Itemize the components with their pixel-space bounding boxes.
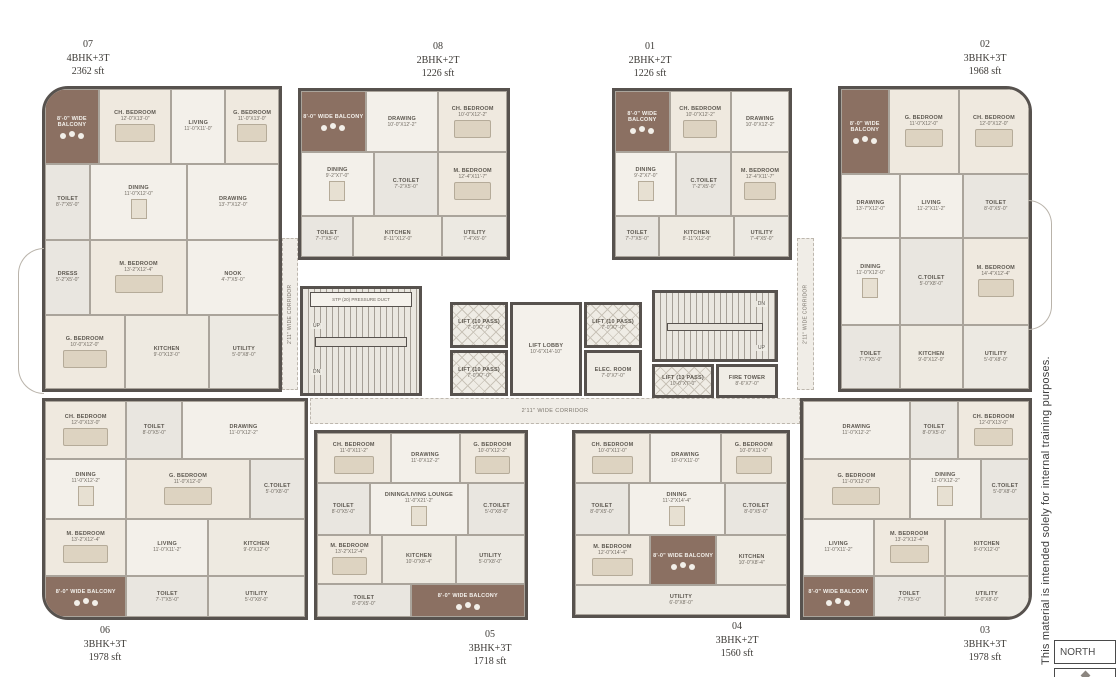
unit-01-plan: 8'-0" WIDE BALCONYCH. BEDROOM10'-0"X12'-… bbox=[612, 88, 792, 260]
room-dim: 11'-0"X12'-2" bbox=[411, 458, 439, 464]
stair-up-label: UP bbox=[756, 345, 767, 351]
room-dim: 10'-0"X12'-2" bbox=[458, 112, 487, 118]
room: 8'-0" WIDE BALCONY bbox=[803, 576, 874, 617]
room: UTILITY6'-0"X8'-0" bbox=[575, 585, 787, 615]
room-dim: 10'-0"X11'-0" bbox=[671, 458, 699, 464]
stair-dn-label: DN bbox=[311, 369, 322, 375]
room-dim: 7'-7"X5'-0" bbox=[625, 236, 648, 242]
room: M. BEDROOM12'-4"X11'-7" bbox=[438, 152, 507, 215]
room-dim: 11'-0"X11'-0" bbox=[184, 126, 212, 132]
room: G. BEDROOM10'-0"X12'-2" bbox=[460, 433, 525, 483]
room: CH. BEDROOM12'-0"X13'-0" bbox=[958, 401, 1029, 459]
room: UTILITY5'-0"X8'-0" bbox=[456, 535, 525, 585]
room-dim: 9'-0"X12'-0" bbox=[918, 357, 944, 363]
room: DINING9'-2"X7'-0" bbox=[615, 152, 676, 215]
unit-label-06: 06 3BHK+3T 1978 sft bbox=[84, 624, 127, 665]
room: TOILET8'-0"X5'-0" bbox=[910, 401, 958, 459]
unit-label-04: 04 3BHK+2T 1560 sft bbox=[716, 620, 759, 661]
room: LIVING11'-0"X11'-2" bbox=[803, 519, 874, 577]
room: DRAWING13'-7"X12'-0" bbox=[841, 174, 900, 239]
room: 8'-0" WIDE BALCONY bbox=[650, 535, 716, 585]
room-dim: 8'-7"X5'-0" bbox=[56, 202, 79, 208]
room: 8'-0" WIDE BALCONY bbox=[615, 91, 670, 152]
room-dim: 6'-0"X8'-0" bbox=[669, 600, 692, 606]
room: C.TOILET5'-0"X8'-0" bbox=[981, 459, 1029, 519]
room-dim: 5'-0"X8'-0" bbox=[479, 559, 502, 565]
room: C.TOILET7'-2"X5'-0" bbox=[676, 152, 731, 215]
room-dim: 11'-0"X12'-0" bbox=[174, 479, 202, 485]
room-dim: 13'-7"X12'-0" bbox=[219, 202, 248, 208]
room: TOILET8'-0"X5'-0" bbox=[575, 483, 629, 535]
room: DINING11'-0"X12'-2" bbox=[45, 459, 126, 519]
fire-tower-dim: 8'-6"X7'-0" bbox=[735, 381, 758, 387]
staircase-left: STP (20) PRESSURE DUCT UP DN bbox=[300, 286, 422, 396]
unit-type: 3BHK+3T bbox=[964, 52, 1007, 66]
room-dim: 10'-0"X12'-2" bbox=[478, 448, 507, 454]
lift-dim: 10'-0"X7'-0" bbox=[670, 381, 696, 387]
lift-dim: 7'-0"X7'-0" bbox=[601, 325, 624, 331]
room: DRAWING10'-0"X11'-0" bbox=[650, 433, 721, 483]
room: CH. BEDROOM12'-0"X12'-0" bbox=[959, 89, 1029, 174]
room: DRAWING10'-0"X12'-2" bbox=[731, 91, 789, 152]
room: LIVING11'-0"X11'-2" bbox=[126, 519, 207, 577]
room: KITCHEN10'-0"X8'-4" bbox=[716, 535, 787, 585]
lift-10-pass-3: LIFT (10 PASS) 7'-0"X7'-0" bbox=[584, 302, 642, 348]
lift-10-pass-2: LIFT (10 PASS) 7'-0"X7'-0" bbox=[450, 350, 508, 396]
room: DINING11'-0"X12'-2" bbox=[910, 459, 981, 519]
room-dim: 10'-0"X8'-4" bbox=[406, 559, 432, 565]
room-dim: 10'-0"X8'-4" bbox=[739, 560, 765, 566]
room-dim: 9'-2"X7'-0" bbox=[634, 173, 657, 179]
room: G. BEDROOM10'-0"X11'-0" bbox=[721, 433, 787, 483]
room-dim: 7'-7"X5'-0" bbox=[859, 357, 882, 363]
unit-area: 1968 sft bbox=[964, 65, 1007, 79]
room: UTILITY5'-0"X8'-0" bbox=[963, 325, 1029, 390]
unit-type: 3BHK+3T bbox=[84, 638, 127, 652]
room: CH. BEDROOM12'-0"X13'-0" bbox=[45, 401, 126, 459]
room: UTILITY5'-0"X8'-0" bbox=[209, 315, 279, 390]
unit-area: 1226 sft bbox=[417, 67, 460, 81]
room-dim: 9'-2"X7'-0" bbox=[326, 173, 349, 179]
floor-plan-canvas: 07 4BHK+3T 2362 sft 08 2BHK+2T 1226 sft … bbox=[0, 0, 1118, 677]
room-dim: 13'-2"X12'-4" bbox=[71, 537, 100, 543]
room-dim: 11'-0"X12'-0" bbox=[842, 479, 870, 485]
room-dim: 10'-0"X11'-0" bbox=[598, 448, 626, 454]
room: G. BEDROOM11'-0"X12'-0" bbox=[803, 459, 910, 519]
room-dim: 12'-0"X13'-0" bbox=[71, 420, 100, 426]
stair-rail bbox=[315, 337, 408, 347]
room-dim: 11'-0"X11'-2" bbox=[340, 448, 368, 454]
room: G. BEDROOM11'-0"X12'-0" bbox=[126, 459, 249, 519]
room-dim: 12'-0"X14'-4" bbox=[598, 550, 627, 556]
room: TOILET7'-7"X5'-0" bbox=[126, 576, 207, 617]
room: KITCHEN8'-11"X12'-0" bbox=[659, 216, 734, 257]
room: UTILITY5'-0"X8'-0" bbox=[945, 576, 1029, 617]
room-dim: 12'-0"X12'-0" bbox=[980, 121, 1009, 127]
unit-number: 05 bbox=[469, 628, 512, 642]
room-dim: 11'-2"X11'-2" bbox=[917, 206, 945, 212]
unit-04-plan: CH. BEDROOM10'-0"X11'-0"DRAWING10'-0"X11… bbox=[572, 430, 790, 618]
room-name: 8'-0" WIDE BALCONY bbox=[843, 121, 887, 133]
room-name: 8'-0" WIDE BALCONY bbox=[438, 593, 498, 599]
room-dim: 12'-0"X13'-0" bbox=[121, 116, 150, 122]
room: TOILET7'-7"X5'-0" bbox=[301, 216, 353, 257]
room: DINING/LIVING LOUNGE11'-0"X21'-2" bbox=[370, 483, 468, 535]
unit-area: 1978 sft bbox=[964, 651, 1007, 665]
room-dim: 10'-0"X12'-0" bbox=[70, 342, 99, 348]
room: DINING11'-0"X12'-0" bbox=[841, 238, 900, 325]
room: CH. BEDROOM10'-0"X11'-0" bbox=[575, 433, 650, 483]
room-dim: 5'-0"X8'-0" bbox=[485, 509, 508, 515]
corridor-right: 2'11" WIDE CORRIDOR bbox=[797, 238, 814, 390]
staircase-right: DN UP bbox=[652, 290, 778, 362]
room-dim: 8'-0"X5'-0" bbox=[352, 601, 375, 607]
room-dim: 11'-0"X11'-2" bbox=[153, 547, 181, 553]
room-dim: 11'-0"X12'-2" bbox=[229, 430, 257, 436]
room: KITCHEN8'-11"X12'-0" bbox=[353, 216, 442, 257]
room-dim: 12'-4"X11'-7" bbox=[746, 174, 774, 180]
room: G. BEDROOM11'-0"X13'-0" bbox=[225, 89, 279, 164]
room: NOOK4'-7"X5'-0" bbox=[187, 240, 279, 315]
stair-rail bbox=[667, 323, 763, 330]
room: KITCHEN9'-0"X12'-0" bbox=[208, 519, 305, 577]
unit-label-07: 07 4BHK+3T 2362 sft bbox=[67, 38, 110, 79]
room-dim: 7'-4"X5'-0" bbox=[750, 236, 773, 242]
room-dim: 11'-0"X13'-0" bbox=[238, 116, 266, 122]
unit-label-05: 05 3BHK+3T 1718 sft bbox=[469, 628, 512, 669]
room: 8'-0" WIDE BALCONY bbox=[301, 91, 366, 152]
room-dim: 5'-0"X8'-0" bbox=[266, 489, 289, 495]
elec-room-dim: 7'-0"X7'-0" bbox=[601, 373, 624, 379]
unit-label-03: 03 3BHK+3T 1978 sft bbox=[964, 624, 1007, 665]
room: M. BEDROOM13'-2"X12'-4" bbox=[45, 519, 126, 577]
room-dim: 11'-0"X12'-0" bbox=[124, 191, 152, 197]
room-dim: 11'-2"X14'-4" bbox=[663, 498, 691, 504]
room: CH. BEDROOM11'-0"X11'-2" bbox=[317, 433, 391, 483]
room-dim: 11'-0"X12'-0" bbox=[856, 270, 884, 276]
unit-label-01: 01 2BHK+2T 1226 sft bbox=[629, 40, 672, 81]
unit-area: 1226 sft bbox=[629, 67, 672, 81]
room-name: 8'-0" WIDE BALCONY bbox=[617, 111, 668, 123]
room: UTILITY7'-4"X5'-0" bbox=[442, 216, 507, 257]
unit-type: 3BHK+2T bbox=[716, 634, 759, 648]
room: DINING11'-2"X14'-4" bbox=[629, 483, 725, 535]
room: TOILET8'-0"X5'-0" bbox=[317, 483, 370, 535]
room-dim: 5'-0"X8'-0" bbox=[245, 597, 268, 603]
room: CH. BEDROOM10'-0"X12'-2" bbox=[438, 91, 507, 152]
room-dim: 7'-2"X5'-0" bbox=[692, 184, 715, 190]
unit-type: 2BHK+2T bbox=[629, 54, 672, 68]
room: M. BEDROOM12'-0"X14'-4" bbox=[575, 535, 650, 585]
unit-type: 4BHK+3T bbox=[67, 52, 110, 66]
unit-number: 08 bbox=[417, 40, 460, 54]
room: M. BEDROOM13'-2"X12'-4" bbox=[874, 519, 945, 577]
elec-room: ELEC. ROOM 7'-0"X7'-0" bbox=[584, 350, 642, 396]
room-dim: 11'-0"X12'-2" bbox=[72, 478, 100, 484]
room: DINING11'-0"X12'-0" bbox=[90, 164, 187, 241]
room-dim: 8'-0"X5'-0" bbox=[922, 430, 945, 436]
unit-area: 2362 sft bbox=[67, 65, 110, 79]
room: 8'-0" WIDE BALCONY bbox=[411, 584, 525, 617]
lift-10-pass-1: LIFT (10 PASS) 7'-0"X7'-0" bbox=[450, 302, 508, 348]
room: M. BEDROOM13'-2"X12'-4" bbox=[90, 240, 187, 315]
unit-type: 3BHK+3T bbox=[964, 638, 1007, 652]
room: DRAWING13'-7"X12'-0" bbox=[187, 164, 279, 241]
north-arrow-box bbox=[1054, 668, 1116, 677]
unit-area: 1978 sft bbox=[84, 651, 127, 665]
room-name: 8'-0" WIDE BALCONY bbox=[47, 116, 97, 128]
room-dim: 4'-7"X5'-0" bbox=[221, 277, 244, 283]
room: DRAWING11'-0"X12'-2" bbox=[803, 401, 910, 459]
room: DRAWING11'-0"X12'-2" bbox=[182, 401, 305, 459]
room: KITCHEN9'-0"X13'-0" bbox=[125, 315, 209, 390]
room: DINING9'-2"X7'-0" bbox=[301, 152, 374, 215]
room-dim: 7'-4"X5'-0" bbox=[463, 236, 486, 242]
room: DRESS5'-2"X5'-0" bbox=[45, 240, 90, 315]
room: C.TOILET7'-2"X5'-0" bbox=[374, 152, 439, 215]
north-label-box: NORTH bbox=[1054, 640, 1116, 664]
room-dim: 10'-0"X12'-2" bbox=[686, 112, 715, 118]
room: 8'-0" WIDE BALCONY bbox=[841, 89, 889, 174]
stair-dn-label: DN bbox=[756, 301, 767, 307]
pressure-duct-label: STP (20) PRESSURE DUCT bbox=[310, 292, 412, 307]
room: G. BEDROOM10'-0"X12'-0" bbox=[45, 315, 125, 390]
corridor-left: 2'11" WIDE CORRIDOR bbox=[282, 238, 298, 390]
room-name: 8'-0" WIDE BALCONY bbox=[653, 553, 713, 559]
room-dim: 13'-7"X12'-0" bbox=[856, 206, 885, 212]
lobby-dim: 10'-6"X14'-10" bbox=[530, 349, 562, 355]
room-dim: 11'-0"X12'-2" bbox=[842, 430, 870, 436]
unit-number: 03 bbox=[964, 624, 1007, 638]
unit-number: 02 bbox=[964, 38, 1007, 52]
room-dim: 8'-11"X12'-0" bbox=[384, 236, 412, 242]
room: TOILET7'-7"X5'-0" bbox=[874, 576, 945, 617]
facade-arc-left bbox=[18, 248, 44, 394]
room-dim: 7'-7"X5'-0" bbox=[156, 597, 179, 603]
room: C.TOILET5'-0"X8'-0" bbox=[468, 483, 525, 535]
room-dim: 11'-0"X11'-2" bbox=[824, 547, 852, 553]
unit-06-plan: CH. BEDROOM12'-0"X13'-0"TOILET8'-0"X5'-0… bbox=[42, 398, 308, 620]
room: M. BEDROOM13'-2"X12'-4" bbox=[317, 535, 382, 585]
room: 8'-0" WIDE BALCONY bbox=[45, 576, 126, 617]
unit-area: 1560 sft bbox=[716, 647, 759, 661]
room-dim: 8'-0"X5'-0" bbox=[744, 509, 767, 515]
room: CH. BEDROOM10'-0"X12'-2" bbox=[670, 91, 731, 152]
room: C.TOILET5'-0"X8'-0" bbox=[900, 238, 963, 325]
room-dim: 8'-0"X5'-0" bbox=[984, 206, 1007, 212]
room-dim: 7'-7"X5'-0" bbox=[315, 236, 338, 242]
room: TOILET8'-7"X5'-0" bbox=[45, 164, 90, 241]
room-dim: 13'-2"X12'-4" bbox=[895, 537, 924, 543]
room: DRAWING10'-0"X12'-2" bbox=[366, 91, 439, 152]
room: UTILITY5'-0"X8'-0" bbox=[208, 576, 305, 617]
room: TOILET8'-0"X5'-0" bbox=[963, 174, 1029, 239]
stair-up-label: UP bbox=[311, 323, 322, 329]
unit-number: 01 bbox=[629, 40, 672, 54]
corridor-center: 2'11" WIDE CORRIDOR bbox=[310, 398, 800, 424]
room-dim: 10'-0"X12'-2" bbox=[388, 122, 417, 128]
room-dim: 9'-0"X12'-0" bbox=[243, 547, 269, 553]
room: UTILITY7'-4"X5'-0" bbox=[734, 216, 789, 257]
unit-type: 3BHK+3T bbox=[469, 642, 512, 656]
room: DRAWING11'-0"X12'-2" bbox=[391, 433, 460, 483]
room: LIVING11'-2"X11'-2" bbox=[900, 174, 963, 239]
room-dim: 5'-0"X8'-0" bbox=[975, 597, 998, 603]
room: TOILET7'-7"X5'-0" bbox=[615, 216, 659, 257]
facade-arc-right bbox=[1028, 200, 1052, 330]
room-dim: 8'-0"X5'-0" bbox=[332, 509, 355, 515]
room-dim: 11'-0"X21'-2" bbox=[405, 498, 433, 504]
unit-02-plan: 8'-0" WIDE BALCONYG. BEDROOM11'-0"X12'-0… bbox=[838, 86, 1032, 392]
room-dim: 8'-11"X12'-0" bbox=[683, 236, 711, 242]
room: M. BEDROOM14'-4"X12'-4" bbox=[963, 238, 1029, 325]
unit-number: 07 bbox=[67, 38, 110, 52]
room: TOILET7'-7"X5'-0" bbox=[841, 325, 900, 390]
unit-area: 1718 sft bbox=[469, 655, 512, 669]
room-name: 8'-0" WIDE BALCONY bbox=[303, 114, 363, 120]
room-dim: 12'-4"X11'-7" bbox=[458, 174, 486, 180]
lift-dim: 7'-0"X7'-0" bbox=[467, 325, 490, 331]
room-dim: 11'-0"X12'-2" bbox=[931, 478, 959, 484]
room-dim: 8'-0"X5'-0" bbox=[143, 430, 166, 436]
room-name: 8'-0" WIDE BALCONY bbox=[808, 589, 868, 595]
room: 8'-0" WIDE BALCONY bbox=[45, 89, 99, 164]
room-dim: 10'-0"X11'-0" bbox=[740, 448, 768, 454]
unit-07-plan: 8'-0" WIDE BALCONYCH. BEDROOM12'-0"X13'-… bbox=[42, 86, 282, 392]
unit-08-plan: 8'-0" WIDE BALCONYDRAWING10'-0"X12'-2"CH… bbox=[298, 88, 510, 260]
unit-number: 06 bbox=[84, 624, 127, 638]
room: LIVING11'-0"X11'-0" bbox=[171, 89, 225, 164]
unit-number: 04 bbox=[716, 620, 759, 634]
room-dim: 5'-0"X8'-0" bbox=[920, 281, 943, 287]
room: M. BEDROOM12'-4"X11'-7" bbox=[731, 152, 789, 215]
room-dim: 5'-0"X8'-0" bbox=[232, 352, 255, 358]
room-dim: 7'-7"X5'-0" bbox=[898, 597, 921, 603]
room: KITCHEN9'-0"X12'-0" bbox=[900, 325, 963, 390]
room-dim: 7'-2"X5'-0" bbox=[394, 184, 417, 190]
unit-type: 2BHK+2T bbox=[417, 54, 460, 68]
room-dim: 8'-0"X5'-0" bbox=[590, 509, 613, 515]
room-dim: 14'-4"X12'-4" bbox=[981, 271, 1010, 277]
unit-label-02: 02 3BHK+3T 1968 sft bbox=[964, 38, 1007, 79]
room-dim: 13'-2"X12'-4" bbox=[124, 267, 153, 273]
room: G. BEDROOM11'-0"X12'-0" bbox=[889, 89, 959, 174]
unit-05-plan: CH. BEDROOM11'-0"X11'-2"DRAWING11'-0"X12… bbox=[314, 430, 528, 620]
room: TOILET8'-0"X5'-0" bbox=[317, 584, 411, 617]
room-dim: 10'-0"X12'-2" bbox=[746, 122, 775, 128]
unit-03-plan: DRAWING11'-0"X12'-2"TOILET8'-0"X5'-0"CH.… bbox=[800, 398, 1032, 620]
disclaimer-text: This material is intended solely for int… bbox=[1040, 335, 1052, 665]
room-dim: 5'-0"X8'-0" bbox=[993, 489, 1016, 495]
room-dim: 5'-0"X8'-0" bbox=[984, 357, 1007, 363]
lift-13-pass: LIFT (13 PASS) 10'-0"X7'-0" bbox=[652, 364, 714, 398]
lift-dim: 7'-0"X7'-0" bbox=[467, 373, 490, 379]
room: TOILET8'-0"X5'-0" bbox=[126, 401, 181, 459]
room-dim: 11'-0"X12'-0" bbox=[910, 121, 938, 127]
room-dim: 9'-0"X13'-0" bbox=[154, 352, 180, 358]
room-dim: 12'-0"X13'-0" bbox=[979, 420, 1008, 426]
room-dim: 13'-2"X12'-4" bbox=[335, 549, 364, 555]
fire-tower: FIRE TOWER 8'-6"X7'-0" bbox=[716, 364, 778, 398]
room: CH. BEDROOM12'-0"X13'-0" bbox=[99, 89, 172, 164]
room: KITCHEN10'-0"X8'-4" bbox=[382, 535, 456, 585]
room-name: 8'-0" WIDE BALCONY bbox=[56, 589, 116, 595]
lift-lobby: LIFT LOBBY 10'-6"X14'-10" bbox=[510, 302, 582, 396]
room: C.TOILET8'-0"X5'-0" bbox=[725, 483, 787, 535]
room: C.TOILET5'-0"X8'-0" bbox=[250, 459, 305, 519]
room-dim: 5'-2"X5'-0" bbox=[56, 277, 79, 283]
unit-label-08: 08 2BHK+2T 1226 sft bbox=[417, 40, 460, 81]
room: KITCHEN9'-0"X12'-0" bbox=[945, 519, 1029, 577]
room-dim: 9'-0"X12'-0" bbox=[974, 547, 1000, 553]
